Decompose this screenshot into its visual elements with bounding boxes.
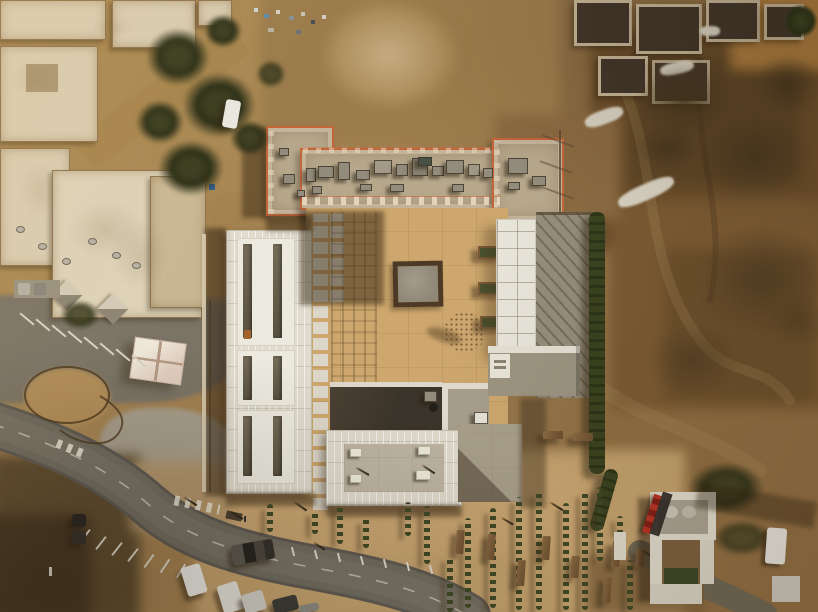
road-chevrons [55,439,84,458]
signpost [244,516,246,522]
island-curb [24,366,110,424]
plaza-tree-row [267,504,273,532]
dark-vehicle [72,531,86,544]
plaza-tree-row [563,503,569,610]
tl-tree [158,140,224,196]
road-marking [291,547,295,556]
tl-tree [136,100,184,144]
aerial-photo [0,0,818,612]
tl-tree [256,60,286,88]
dark-vehicle [72,514,86,527]
crosswalk [173,495,220,514]
bench [570,556,580,579]
portacabin [772,576,800,602]
white-van [765,527,787,564]
moving-car [231,539,276,566]
road-marking [67,330,82,343]
road-marking [83,336,98,349]
parked-car [298,602,319,612]
tl-tree [60,300,100,330]
road-marking [360,556,364,565]
tank [682,506,696,518]
bench [573,433,593,441]
road-marking [314,550,318,559]
white-cabin [614,532,626,560]
bench [455,530,465,554]
light-pole-shadow [421,464,435,475]
road-marking [160,559,171,573]
road-marking [127,548,138,562]
road-marking [19,312,34,325]
road-marking [143,554,154,568]
plaza-tree-row [627,560,633,610]
road-marking [95,536,106,550]
light-pole-shadow [293,501,307,512]
parked-car [272,594,300,612]
bench [602,577,612,603]
tl-tree [712,520,772,556]
light-pole-shadow [355,466,370,476]
white-wall [700,540,714,584]
bench [541,536,551,560]
road-marking [111,542,122,556]
signpost [49,567,52,576]
road-marking [35,318,50,331]
road-marking [51,324,66,337]
plaza-tree-row [312,510,318,534]
parked-car [241,589,268,612]
plaza-tree-row [465,518,471,608]
light-pole-shadow [549,501,564,511]
road-marking [115,348,130,361]
road-marking [406,562,410,571]
road-marking [99,342,114,355]
details-layer [0,0,818,612]
bench [543,431,563,439]
plaza-tree-row [582,491,588,610]
light-pole-shadow [500,517,513,526]
parked-car [180,563,208,598]
plaza-tree-row [424,506,430,564]
plaza-tree-row [516,497,522,610]
white-wall [650,584,702,604]
plaza-tree-row [447,556,453,612]
plaza-tree-row [405,502,411,536]
tl-tree [204,14,242,48]
road-marking [429,565,433,574]
plaza-tree-row [597,487,603,561]
plaza-tree-row [363,518,369,548]
road-marking [383,559,387,568]
bench [516,560,526,586]
plaza-tree-row [337,504,343,544]
road-marking [337,553,341,562]
